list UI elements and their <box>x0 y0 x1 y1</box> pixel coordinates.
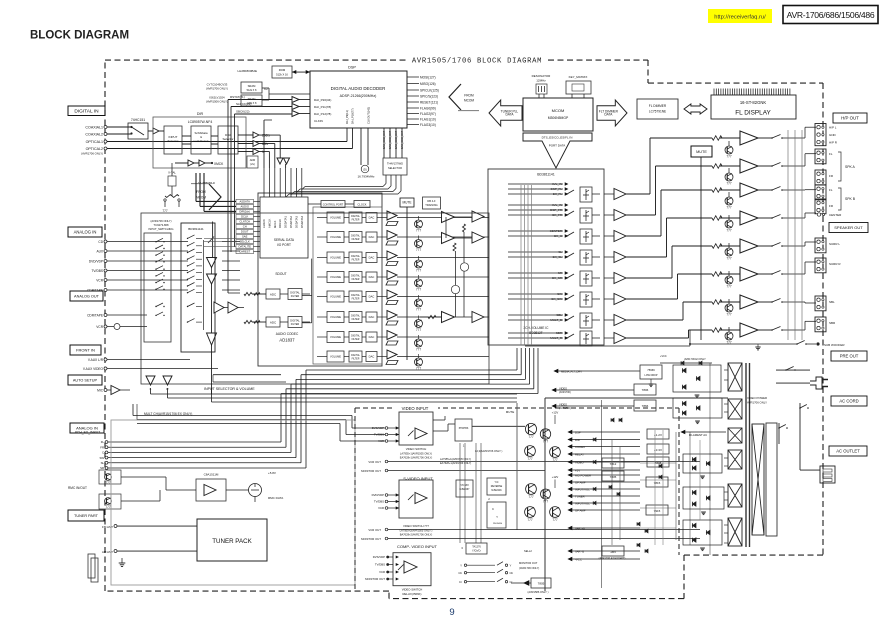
svg-text:COMP- VIDEO INPUT: COMP- VIDEO INPUT <box>397 544 438 549</box>
svg-text:TA1276: TA1276 <box>472 546 481 549</box>
svg-text:DIGITAL: DIGITAL <box>351 235 360 238</box>
svg-text:SURR L: SURR L <box>829 242 840 246</box>
svg-text:VIDEO SWITCH 777: VIDEO SWITCH 777 <box>403 524 429 528</box>
svg-text:DIGITAL: DIGITAL <box>351 294 360 297</box>
svg-text:(AVR1706): (AVR1706) <box>559 407 571 410</box>
svg-text:777: 777 <box>726 182 732 186</box>
svg-text:DB 4-F: DB 4-F <box>427 199 436 203</box>
svg-text:NJM2267: NJM2267 <box>460 489 471 491</box>
svg-text:DAI_P9(11): DAI_P9(11) <box>345 110 349 124</box>
svg-text:FILTER: FILTER <box>352 220 360 222</box>
svg-text:DVD/VDP: DVD/VDP <box>372 493 385 497</box>
svg-text:DIGITAL: DIGITAL <box>351 255 360 258</box>
svg-text:BA7628+2(AVR1706 ONLY): BA7628+2(AVR1706 ONLY) <box>400 533 433 537</box>
svg-text:FILTER: FILTER <box>291 295 300 298</box>
svg-text:BD3811141: BD3811141 <box>188 227 204 231</box>
svg-text:DAC_SDO_DAT: DAC_SDO_DAT <box>395 131 398 150</box>
svg-text:C8A1511M: C8A1511M <box>204 473 219 477</box>
svg-text:DAC: DAC <box>369 335 375 339</box>
svg-text:Selector: Selector <box>167 139 178 143</box>
svg-text:75966: 75966 <box>647 368 655 372</box>
svg-text:LC89057W-NF4: LC89057W-NF4 <box>188 120 213 124</box>
svg-text:Y/Cb/Cr: Y/Cb/Cr <box>472 550 481 553</box>
svg-text:777: 777 <box>543 440 549 444</box>
svg-text:DSDATA1: DSDATA1 <box>284 215 288 228</box>
svg-text:DSDATA3: DSDATA3 <box>294 215 298 228</box>
svg-text:LC75791NE: LC75791NE <box>649 110 666 114</box>
svg-text:CD: CD <box>98 240 103 244</box>
svg-text:TUNER PART: TUNER PART <box>74 514 99 518</box>
svg-text:SBR: SBR <box>829 321 836 325</box>
svg-text:TV/DBS: TV/DBS <box>375 563 385 567</box>
svg-text:MCLK: MCLK <box>273 220 277 228</box>
svg-text:SDOUT: SDOUT <box>275 272 286 276</box>
svg-text:FM ANT: FM ANT <box>102 525 113 529</box>
svg-text:COAXIAL2: COAXIAL2 <box>85 133 103 137</box>
svg-text:SBL: SBL <box>829 300 835 304</box>
svg-text:DAC_SDO_DAT: DAC_SDO_DAT <box>389 131 392 150</box>
svg-text:MUTE: MUTE <box>696 150 707 154</box>
svg-text:VOLUME: VOLUME <box>330 355 341 359</box>
svg-text:DSP: DSP <box>348 66 356 70</box>
svg-text:COAXIAL1: COAXIAL1 <box>85 126 103 130</box>
svg-text:OPTICAL1: OPTICAL1 <box>86 140 103 144</box>
svg-text:FILTER: FILTER <box>352 339 360 341</box>
svg-text:DCLK: DCLK <box>241 215 248 219</box>
svg-text:SW: SW <box>99 456 104 460</box>
svg-text:VOLUME: VOLUME <box>330 315 341 319</box>
svg-text:TUNER PACK: TUNER PACK <box>212 538 252 545</box>
svg-text:FILTER: FILTER <box>352 319 360 321</box>
svg-text:VCR OUT: VCR OUT <box>368 528 381 532</box>
svg-text:777: 777 <box>416 229 422 233</box>
svg-text:PHCHBS: PHCHBS <box>493 523 503 525</box>
svg-text:OPTICAL2: OPTICAL2 <box>86 147 103 151</box>
svg-text:777: 777 <box>528 495 534 499</box>
svg-text:(AVR1706 ONLY): (AVR1706 ONLY) <box>519 566 539 570</box>
svg-text:FILTER: FILTER <box>352 299 360 301</box>
svg-text:SRAM: SRAM <box>248 84 257 88</box>
svg-text:FLAG0(99): FLAG0(99) <box>420 106 436 110</box>
svg-text:VCR: VCR <box>379 570 385 574</box>
svg-text:AUDIO CODEC: AUDIO CODEC <box>276 332 299 336</box>
svg-text:VOLUME: VOLUME <box>330 295 341 299</box>
svg-text:VCR: VCR <box>96 325 103 329</box>
svg-text:777: 777 <box>162 209 168 213</box>
svg-text:SAE: SAE <box>242 235 248 239</box>
svg-text:SURR R: SURR R <box>829 262 841 266</box>
svg-text:M306N5MGP: M306N5MGP <box>548 116 569 120</box>
svg-text:SPICLK(125): SPICLK(125) <box>420 88 439 92</box>
svg-text:SPEAKER OUT: SPEAKER OUT <box>834 225 863 230</box>
svg-text:AD1837: AD1837 <box>279 338 295 343</box>
svg-text:FL: FL <box>829 188 833 192</box>
svg-text:AVR-1706/686/1506/486: AVR-1706/686/1506/486 <box>787 10 875 20</box>
svg-text:DIGITAL: DIGITAL <box>351 335 360 338</box>
svg-text:DVD/VDP: DVD/VDP <box>89 259 103 263</box>
svg-text:LA7955+1(AVR1505 ONLY): LA7955+1(AVR1505 ONLY) <box>440 458 471 461</box>
svg-text:AVR1706 ONLY: AVR1706 ONLY <box>747 401 767 405</box>
svg-text:777: 777 <box>416 308 422 312</box>
svg-text:AM ANT: AM ANT <box>102 550 113 554</box>
svg-text:CLKIN: CLKIN <box>314 119 323 123</box>
svg-text:MCOM: MCOM <box>464 99 474 103</box>
svg-text:BLOCK DIAGRAM: BLOCK DIAGRAM <box>30 30 129 42</box>
svg-text:CHREST: CHREST <box>239 250 250 254</box>
svg-text:RSTAT(21): RSTAT(21) <box>230 95 245 99</box>
svg-text:16-ST-82GNK: 16-ST-82GNK <box>740 100 767 105</box>
svg-text:H/P OUT: H/P OUT <box>841 116 859 121</box>
svg-text:DAI_P11(78): DAI_P11(78) <box>314 105 331 109</box>
svg-text:Y: Y <box>460 563 462 567</box>
svg-text:TV/DBS: TV/DBS <box>91 269 103 273</box>
svg-text:MISO(126): MISO(126) <box>420 82 436 86</box>
svg-text:RESONATOR: RESONATOR <box>532 74 552 78</box>
svg-text:MCOM: MCOM <box>196 196 206 200</box>
svg-text:VCR: VCR <box>96 278 103 282</box>
svg-text:FL: FL <box>101 440 105 444</box>
svg-text:CH: CH <box>243 225 247 229</box>
svg-text:L2,3(6AVR1706 ONLY ): L2,3(6AVR1706 ONLY ) <box>475 449 503 453</box>
svg-text:DVS/VDP: DVS/VDP <box>373 555 385 559</box>
svg-text:SELCLK: SELCLK <box>240 240 251 244</box>
svg-text:DAI_P12(78): DAI_P12(78) <box>314 112 331 116</box>
svg-text:FL DIMMER: FL DIMMER <box>649 104 667 108</box>
svg-text:SPK B: SPK B <box>845 197 856 201</box>
svg-text:SELL2: SELL2 <box>524 549 532 553</box>
svg-text:777: 777 <box>416 348 422 352</box>
svg-text:VCR OUT: VCR OUT <box>368 460 381 464</box>
svg-text:-36V: -36V <box>610 550 616 554</box>
svg-text:VOLUME: VOLUME <box>330 235 341 239</box>
svg-text:7815: 7815 <box>654 481 661 485</box>
svg-text:CDR/TAPE: CDR/TAPE <box>87 288 103 292</box>
svg-text:VCR: VCR <box>378 506 384 510</box>
svg-text:AC OUTLET: AC OUTLET <box>836 449 860 454</box>
svg-text:FILTER: FILTER <box>352 359 360 361</box>
svg-text:12MHz: 12MHz <box>536 79 546 83</box>
svg-text:H/P L: H/P L <box>829 126 837 130</box>
svg-text:TV/DBS: TV/DBS <box>374 500 384 504</box>
svg-text:NJM2246: NJM2246 <box>491 489 502 492</box>
svg-text:DAC: DAC <box>369 275 375 279</box>
svg-text:DIGITAL: DIGITAL <box>351 354 360 357</box>
svg-text:RMC DATA: RMC DATA <box>268 496 283 500</box>
svg-text:MONITOR OUT: MONITOR OUT <box>361 537 381 541</box>
svg-text:AUDIO: AUDIO <box>240 205 249 209</box>
svg-text:(AVR1506 ONLY): (AVR1506 ONLY) <box>206 100 228 104</box>
svg-text:Y/C: Y/C <box>495 481 499 484</box>
svg-text:777: 777 <box>416 328 422 332</box>
svg-text:VOLUME: VOLUME <box>330 275 341 279</box>
svg-text:DIGITAL: DIGITAL <box>351 315 360 318</box>
svg-text:9: 9 <box>449 607 454 618</box>
svg-text:FILTER: FILTER <box>352 260 360 262</box>
svg-text:MOSI(127): MOSI(127) <box>420 75 436 79</box>
svg-text:Y/C MIX: Y/C MIX <box>460 485 469 487</box>
svg-text:VIDEO SWITCH: VIDEO SWITCH <box>406 447 427 451</box>
svg-text:DAC: DAC <box>369 235 375 239</box>
svg-text:VIDEO POWER: VIDEO POWER <box>747 396 767 400</box>
svg-text:FL DISPLAY: FL DISPLAY <box>735 110 771 117</box>
svg-text:DATA: DATA <box>505 113 514 117</box>
svg-text:DIGITAL AUDIO DECODER: DIGITAL AUDIO DECODER <box>331 86 386 91</box>
svg-text:DIGITAL: DIGITAL <box>351 275 360 278</box>
svg-text:DVS/VDP: DVS/VDP <box>372 426 384 430</box>
svg-text:777: 777 <box>527 457 533 461</box>
svg-text:(2s): (2s) <box>250 162 255 166</box>
svg-text:MONITOR OUT: MONITOR OUT <box>365 577 385 581</box>
svg-text:777: 777 <box>527 518 533 522</box>
svg-text:AUTO SETUP: AUTO SETUP <box>73 378 98 382</box>
svg-text:MONITOR OUT: MONITOR OUT <box>361 469 381 473</box>
svg-text:(AVR1706): (AVR1706) <box>559 391 571 394</box>
svg-text:DIR: DIR <box>197 112 204 116</box>
svg-text:DIGITAL: DIGITAL <box>351 215 360 218</box>
svg-text:SRAM: SRAM <box>248 97 257 101</box>
svg-text:DTS_ES/CO_ES/FL IN: DTS_ES/CO_ES/FL IN <box>542 136 573 140</box>
svg-text:BD3811141: BD3811141 <box>537 173 555 177</box>
svg-text:SR: SR <box>100 466 104 470</box>
svg-text:V.AUX L/R: V.AUX L/R <box>88 358 104 362</box>
svg-text:DSDATA4: DSDATA4 <box>300 215 304 228</box>
svg-text:CENTER: CENTER <box>829 213 842 217</box>
svg-text:FROM: FROM <box>464 94 474 98</box>
svg-text:Y: Y <box>496 515 498 519</box>
svg-text:777: 777 <box>552 518 558 522</box>
svg-text:FILTER: FILTER <box>352 279 360 281</box>
svg-text:DSDATA2: DSDATA2 <box>289 215 293 228</box>
svg-text:7915: 7915 <box>654 509 661 513</box>
svg-text:CLOCK: CLOCK <box>358 203 367 207</box>
svg-text:(D): (D) <box>363 168 367 172</box>
svg-text:MUTE: MUTE <box>402 201 411 205</box>
svg-text:ADC: ADC <box>270 320 277 324</box>
svg-text:C: C <box>102 451 104 455</box>
svg-text:777: 777 <box>416 248 422 252</box>
svg-text:DAC: DAC <box>369 315 375 319</box>
svg-text:Cb: Cb <box>510 571 514 575</box>
svg-text:TC9273-868: TC9273-868 <box>154 223 169 227</box>
svg-text:128k X 8: 128k X 8 <box>247 102 257 105</box>
svg-text:777: 777 <box>726 206 732 210</box>
svg-text:PHCHBS: PHCHBS <box>459 428 469 430</box>
svg-text:FILTER: FILTER <box>352 239 360 241</box>
svg-text:DATALITE: DATALITE <box>238 245 251 249</box>
svg-text:DAC: DAC <box>369 216 375 220</box>
svg-text:777: 777 <box>105 505 111 509</box>
svg-text:MIC: MIC <box>97 389 104 393</box>
svg-text:DIR(2ch): DIR(2ch) <box>239 210 250 214</box>
svg-text:INPUT_SWITCHING: INPUT_SWITCHING <box>149 227 174 231</box>
svg-text:FR: FR <box>100 445 104 449</box>
svg-text:777: 777 <box>726 285 732 289</box>
svg-text:SBCK(22): SBCK(22) <box>236 110 250 114</box>
svg-text:777: 777 <box>416 269 422 273</box>
svg-text:ROM: ROM <box>279 68 286 72</box>
svg-text:REVERSE: REVERSE <box>491 485 503 488</box>
svg-text:RESET(121): RESET(121) <box>420 100 438 104</box>
svg-text:FLAG2(97): FLAG2(97) <box>420 112 436 116</box>
svg-text:2CH-VOLUME IC: 2CH-VOLUME IC <box>524 326 550 330</box>
svg-text:LA7955+2(AVR1505 ONLY ): LA7955+2(AVR1505 ONLY ) <box>400 529 433 533</box>
svg-text:VIDEO SWITCH: VIDEO SWITCH <box>402 588 423 592</box>
svg-text:(AVR1706 E3 EXCEPT): (AVR1706 E3 EXCEPT) <box>599 557 626 560</box>
svg-text:I/O PORT: I/O PORT <box>277 243 291 247</box>
svg-text:Lock Detect: Lock Detect <box>194 139 209 143</box>
svg-text:777: 777 <box>552 458 558 462</box>
svg-text:777: 777 <box>105 481 111 485</box>
svg-text:SERIAL DATA: SERIAL DATA <box>274 238 295 242</box>
svg-text:VOLUME: VOLUME <box>330 335 341 339</box>
svg-text:AC CORD: AC CORD <box>839 399 858 404</box>
svg-text:FILAMENT AC: FILAMENT AC <box>689 433 707 437</box>
svg-text:512k X 8: 512k X 8 <box>247 89 257 92</box>
svg-text:FROM: FROM <box>196 190 206 194</box>
svg-text:(AVR1706 ONLY): (AVR1706 ONLY) <box>151 219 172 223</box>
svg-text:777: 777 <box>726 257 732 261</box>
svg-text:VIDEO INPUT: VIDEO INPUT <box>402 406 429 411</box>
svg-text:SPK A: SPK A <box>845 165 856 169</box>
svg-text:7808: 7808 <box>655 461 662 465</box>
svg-text:Cr: Cr <box>459 580 462 584</box>
svg-text:777: 777 <box>726 229 732 233</box>
svg-text:SL: SL <box>101 461 105 465</box>
svg-text:Y: Y <box>510 563 512 567</box>
svg-text:LOW DROP: LOW DROP <box>644 374 657 377</box>
svg-text:777: 777 <box>528 435 534 439</box>
svg-text:ANALOG OUT: ANALOG OUT <box>74 294 100 298</box>
svg-text:AVR1706 E3 ONLY: AVR1706 E3 ONLY <box>684 358 706 361</box>
svg-text:MUTE: MUTE <box>506 410 515 414</box>
svg-text:777: 777 <box>543 500 549 504</box>
svg-text:ALRCK: ALRCK <box>262 219 266 228</box>
svg-text:VOLUME: VOLUME <box>330 256 341 260</box>
svg-text:SELECTOR: SELECTOR <box>388 166 402 170</box>
svg-text:FILTER: FILTER <box>291 323 300 326</box>
svg-text:GND: GND <box>829 133 837 137</box>
svg-text:DAC_SDO_DAT: DAC_SDO_DAT <box>383 131 386 150</box>
svg-text:DAC_SDO_DAT: DAC_SDO_DAT <box>401 131 404 150</box>
svg-text:777: 777 <box>726 341 732 345</box>
svg-text:DAC: DAC <box>369 355 375 359</box>
svg-text:VCR: VCR <box>378 439 384 443</box>
svg-text:ADR: ADR <box>250 158 256 162</box>
svg-text:DAC: DAC <box>369 295 375 299</box>
svg-text:Cb: Cb <box>458 571 462 575</box>
svg-text:ASDATA: ASDATA <box>240 200 251 204</box>
svg-text:SUB WOOFER: SUB WOOFER <box>824 343 845 347</box>
svg-text:CLKOUT(142): CLKOUT(142) <box>367 107 371 124</box>
svg-text:http://receiverfaq.ru/: http://receiverfaq.ru/ <box>714 15 766 21</box>
svg-text:DAC: DAC <box>369 256 375 260</box>
svg-text:MONITOR OUT: MONITOR OUT <box>519 561 538 565</box>
svg-text:SPIC/S(123): SPIC/S(123) <box>420 94 438 98</box>
svg-text:(AVR1706 ONLY): (AVR1706 ONLY) <box>81 152 103 156</box>
svg-text:V.AUX VIDEO: V.AUX VIDEO <box>83 367 104 371</box>
svg-text:8CH_EX_INPUT: 8CH_EX_INPUT <box>75 431 100 435</box>
svg-text:AVR1505/1706 BLOCK DIAGRAM: AVR1505/1706 BLOCK DIAGRAM <box>412 58 542 66</box>
svg-text:(AVR1706 ONLY): (AVR1706 ONLY) <box>206 87 228 91</box>
svg-text:FRONT IN: FRONT IN <box>76 347 95 352</box>
svg-text:K2: K2 <box>264 87 268 91</box>
svg-text:PRE OUT: PRE OUT <box>840 354 859 359</box>
svg-text:LA7955+1(AVR1505 ONLY): LA7955+1(AVR1505 ONLY) <box>400 452 432 456</box>
svg-text:+12V: +12V <box>552 411 559 415</box>
svg-text:TV/DBS: TV/DBS <box>374 433 384 437</box>
svg-text:AUX: AUX <box>96 249 103 253</box>
svg-text:+12V: +12V <box>552 475 559 479</box>
svg-text:7806: 7806 <box>642 388 649 392</box>
svg-text:CONTROL PORT: CONTROL PORT <box>323 203 344 207</box>
svg-text:EA7628+1(AVR1706 ONLY): EA7628+1(AVR1706 ONLY) <box>400 456 433 460</box>
svg-text:FLAG1(10): FLAG1(10) <box>420 117 436 121</box>
svg-text:C: C <box>492 507 494 511</box>
svg-text:TH4V137/WD: TH4V137/WD <box>387 162 403 166</box>
svg-text:LH28F800BJE: LH28F800BJE <box>237 69 257 73</box>
svg-text:7805: 7805 <box>610 475 617 479</box>
svg-text:DRCLK: DRCLK <box>278 219 282 228</box>
svg-text:DATA: DATA <box>604 113 613 117</box>
svg-text:KEY_MATRIX: KEY_MATRIX <box>569 75 588 79</box>
svg-text:RELAY(2566K): RELAY(2566K) <box>403 592 422 596</box>
svg-text:ADSP-21266(200MHz): ADSP-21266(200MHz) <box>340 94 377 98</box>
svg-text:777: 777 <box>416 288 422 292</box>
svg-text:AMCLK: AMCLK <box>267 219 271 228</box>
svg-text:DAI_P18(77): DAI_P18(77) <box>351 108 355 124</box>
svg-text:7866: 7866 <box>642 404 649 408</box>
svg-text:VOLUME: VOLUME <box>330 216 341 220</box>
svg-text:TRAINING: TRAINING <box>425 203 437 207</box>
svg-text:DIGITAL IN: DIGITAL IN <box>74 108 99 114</box>
svg-text:MCOM: MCOM <box>552 108 565 113</box>
svg-text:RMC IN/OUT: RMC IN/OUT <box>68 486 87 490</box>
svg-text:7812: 7812 <box>610 462 617 466</box>
svg-text:7805: 7805 <box>538 582 545 586</box>
svg-text:XMCK: XMCK <box>214 162 224 166</box>
svg-text:777: 777 <box>726 155 732 159</box>
svg-text:DOUT: DOUT <box>241 230 249 234</box>
svg-text:H/P R: H/P R <box>829 141 838 145</box>
svg-text:PORT DATA: PORT DATA <box>549 144 566 148</box>
svg-text:+VCC: +VCC <box>660 355 667 358</box>
svg-text:EA7628+1(AVR1706 ONLY): EA7628+1(AVR1706 ONLY) <box>440 462 471 465</box>
svg-text:ANALOG IN: ANALOG IN <box>74 230 97 235</box>
svg-text:512k X 16: 512k X 16 <box>276 73 288 77</box>
svg-text:FL: FL <box>829 152 833 156</box>
svg-text:DAI_P20(34): DAI_P20(34) <box>314 98 331 102</box>
svg-text:CLATCH: CLATCH <box>239 220 250 224</box>
svg-text:777: 777 <box>726 313 732 317</box>
svg-text:ADC: ADC <box>270 292 277 296</box>
svg-text:16.7934MHz: 16.7934MHz <box>357 175 375 179</box>
svg-text:CDR/TAPE: CDR/TAPE <box>87 313 103 317</box>
svg-text:+5.8V: +5.8V <box>268 471 276 475</box>
svg-text:74HC151: 74HC151 <box>131 118 145 122</box>
svg-text:FLAG3(10): FLAG3(10) <box>420 123 436 127</box>
